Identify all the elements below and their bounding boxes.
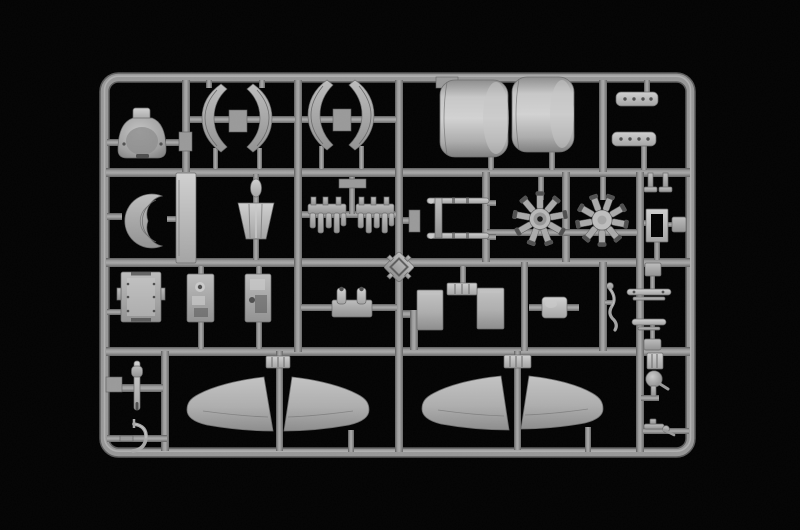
sprue-photo bbox=[0, 0, 800, 530]
film-grain-overlay bbox=[0, 0, 800, 530]
photo-stage bbox=[0, 0, 800, 530]
